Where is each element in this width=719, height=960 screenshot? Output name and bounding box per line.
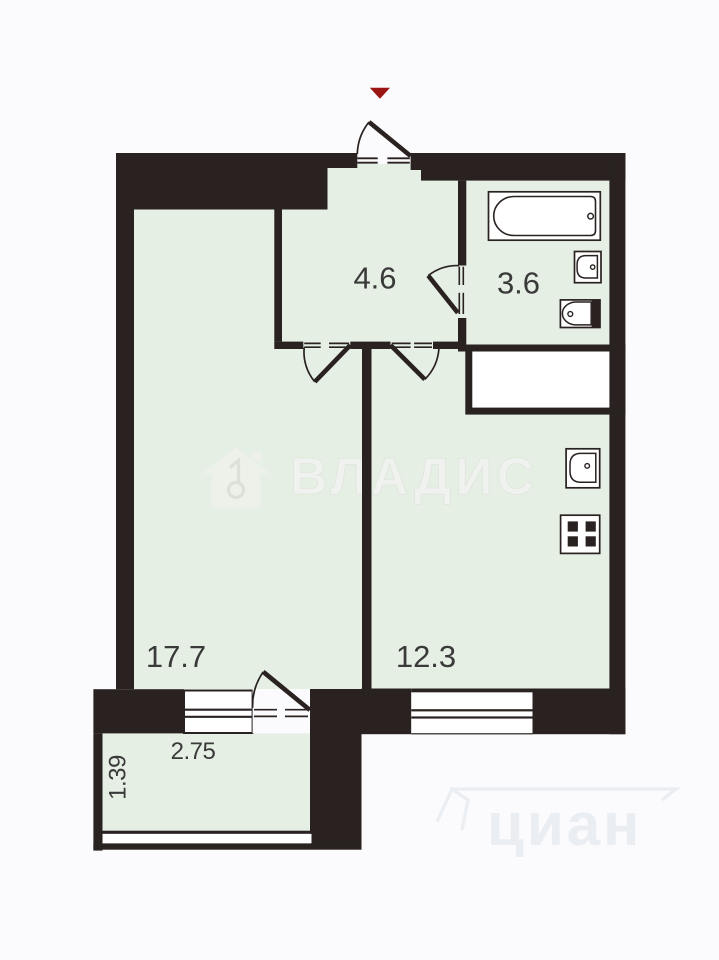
svg-text:ВЛАДИС: ВЛАДИС <box>290 448 538 506</box>
svg-text:3.6: 3.6 <box>497 266 540 301</box>
svg-text:12.3: 12.3 <box>396 639 456 674</box>
svg-text:1.39: 1.39 <box>105 755 132 800</box>
svg-text:2.75: 2.75 <box>171 738 216 765</box>
svg-text:4.6: 4.6 <box>353 261 396 296</box>
svg-text:циан: циан <box>487 791 642 858</box>
svg-text:17.7: 17.7 <box>146 639 206 674</box>
